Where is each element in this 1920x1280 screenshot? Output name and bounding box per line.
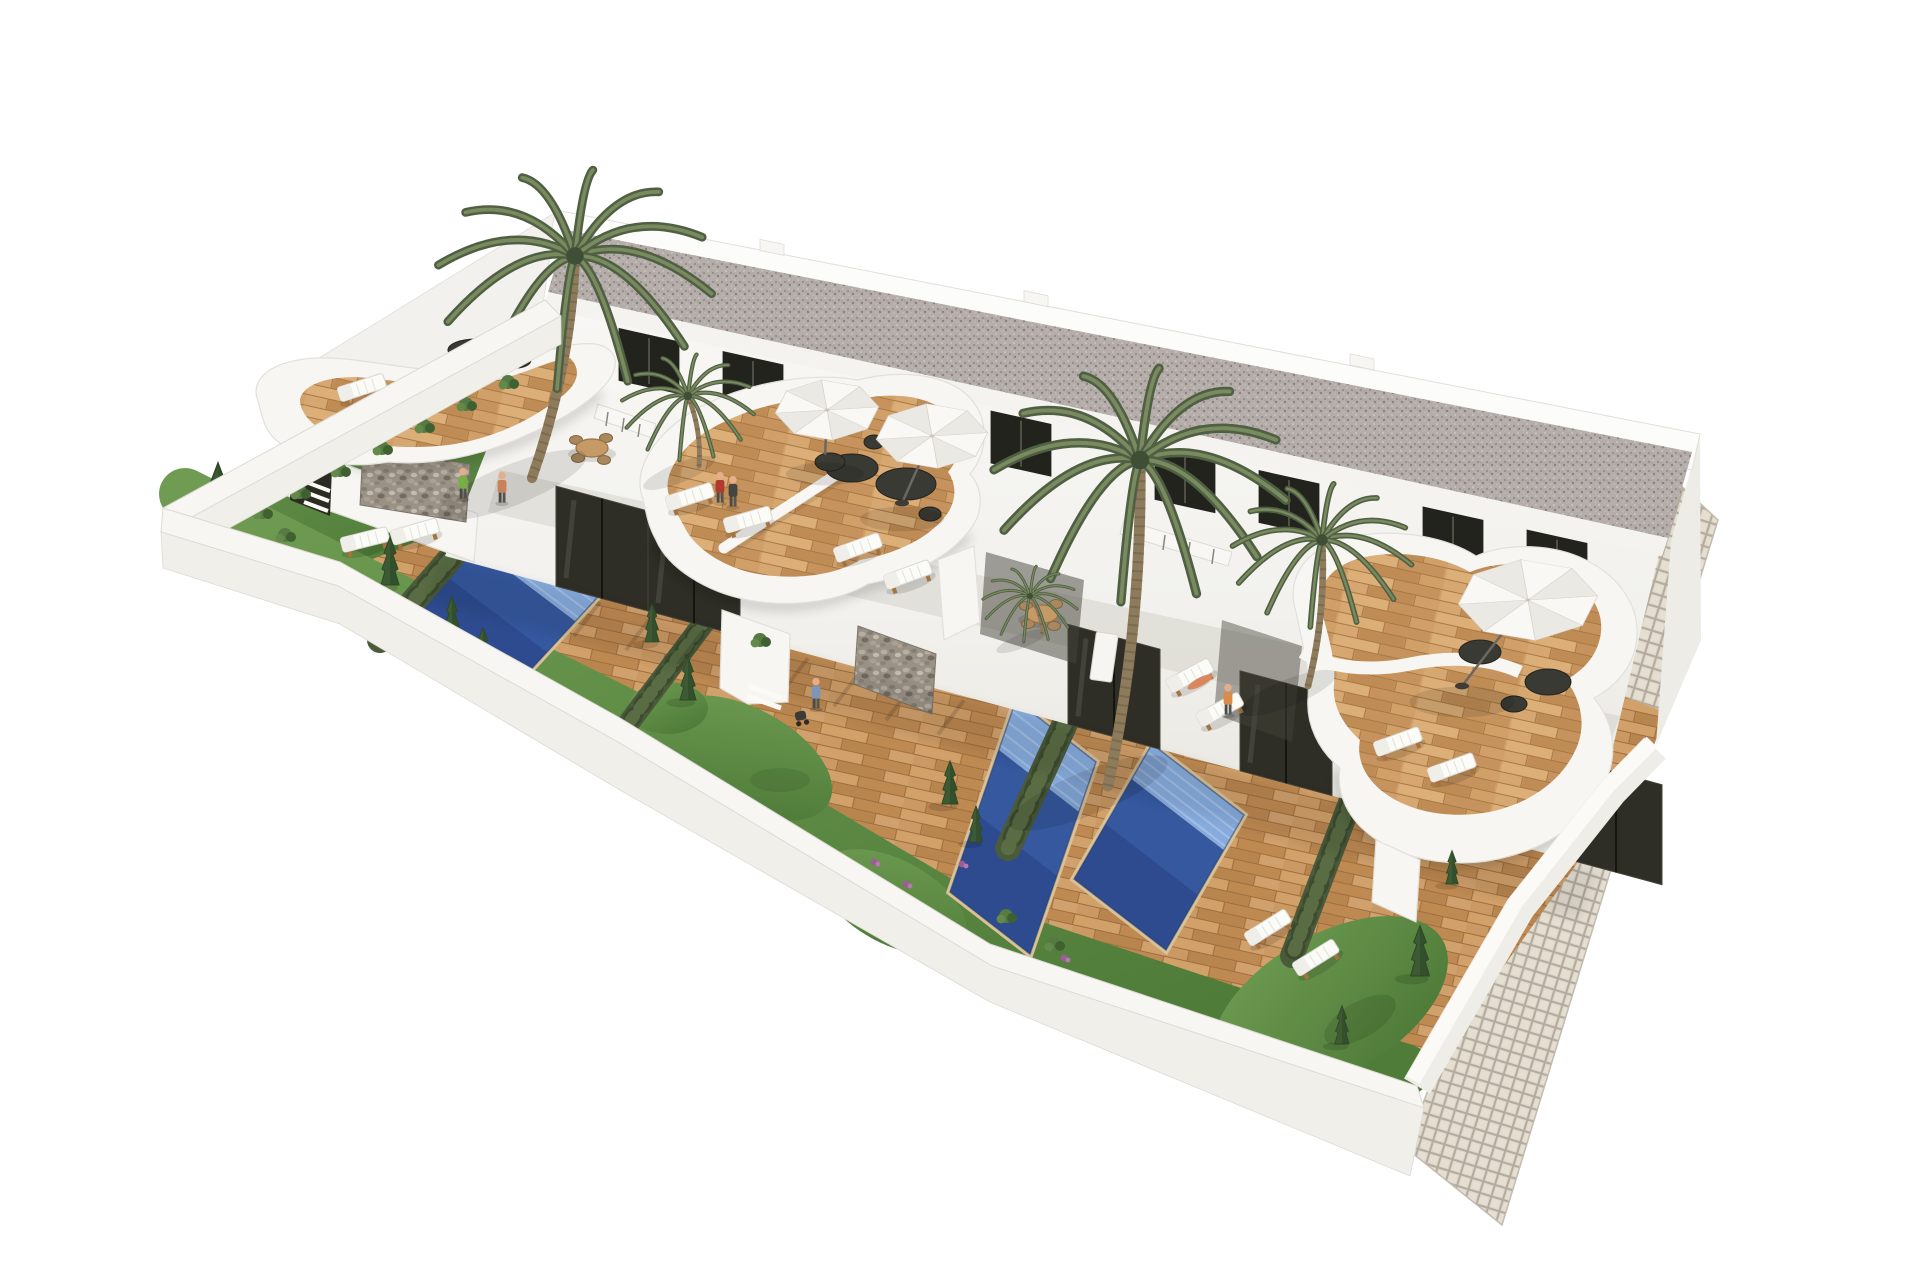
person-leg xyxy=(1229,704,1232,714)
shadow xyxy=(1221,713,1234,718)
person-torso xyxy=(459,476,468,489)
person-leg xyxy=(460,488,463,498)
person-head xyxy=(1224,684,1231,691)
parasol-base xyxy=(818,455,832,462)
bush xyxy=(499,381,508,390)
person-leg xyxy=(730,496,733,506)
shadow xyxy=(726,505,739,510)
chair xyxy=(1048,622,1061,631)
person-head xyxy=(716,472,723,479)
bush xyxy=(1055,941,1065,951)
bush xyxy=(415,425,424,434)
bush xyxy=(383,445,393,455)
bush xyxy=(286,532,296,542)
person-torso xyxy=(729,484,738,497)
bush xyxy=(509,379,519,389)
person-head xyxy=(498,472,505,479)
palm-crown xyxy=(1316,534,1327,545)
bush xyxy=(751,639,760,648)
palm-crown xyxy=(1027,593,1033,599)
person-head xyxy=(729,476,736,483)
bush xyxy=(341,467,351,477)
shadow xyxy=(809,707,822,712)
bush xyxy=(1007,913,1017,923)
chair xyxy=(598,456,611,465)
shadow xyxy=(495,501,508,506)
person-leg xyxy=(817,698,820,708)
person-leg xyxy=(717,492,720,502)
palm-crown xyxy=(1131,451,1150,470)
person-leg xyxy=(464,488,467,498)
flower xyxy=(1066,958,1071,963)
bush xyxy=(467,401,477,411)
palm-crown xyxy=(684,392,692,400)
shadow xyxy=(786,463,864,486)
shadow xyxy=(456,497,469,502)
bush xyxy=(425,423,435,433)
flower xyxy=(964,864,969,869)
person-leg xyxy=(503,492,506,502)
parasol-base xyxy=(1455,683,1469,690)
palm-crown xyxy=(566,247,583,264)
bush xyxy=(761,637,771,647)
person-torso xyxy=(716,480,725,493)
dark-lounge-furniture xyxy=(1525,669,1571,695)
shadow xyxy=(860,507,944,532)
flower xyxy=(876,862,881,867)
person-head xyxy=(459,468,466,475)
bush xyxy=(263,509,273,519)
person-torso xyxy=(812,686,821,699)
person-leg xyxy=(813,698,816,708)
person-head xyxy=(812,678,819,685)
bush xyxy=(276,534,285,543)
architectural-render xyxy=(0,0,1920,1280)
bush xyxy=(1045,943,1054,952)
render-canvas xyxy=(0,0,1920,1280)
person-leg xyxy=(499,492,502,502)
bush xyxy=(301,489,311,499)
person-torso xyxy=(1224,692,1233,705)
parasol-base xyxy=(895,500,909,507)
bush xyxy=(457,403,466,412)
bush xyxy=(997,915,1006,924)
person-leg xyxy=(734,496,737,506)
person-leg xyxy=(721,492,724,502)
person-torso xyxy=(498,480,507,493)
shadow xyxy=(1410,687,1515,718)
shadow xyxy=(713,501,726,506)
person-leg xyxy=(1225,704,1228,714)
flower xyxy=(908,884,913,889)
